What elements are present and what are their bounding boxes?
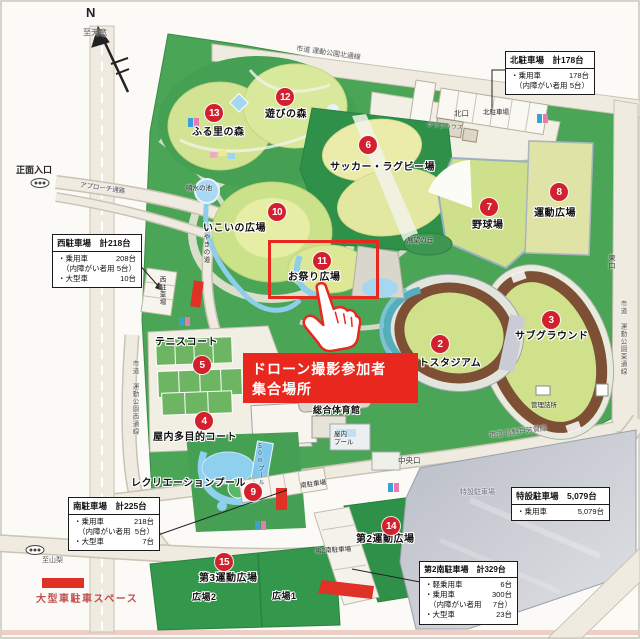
row-value: 10台 (120, 274, 136, 284)
marker-6: 6 (359, 136, 377, 154)
map-label-lookout-hill: 展望の丘 (407, 234, 433, 244)
second-south-parking-title: 第2南駐車場 計329台 (420, 562, 517, 578)
west-parking-title: 西駐車場 計218台 (53, 235, 141, 252)
row-value: 5台） (570, 81, 589, 91)
map-label-indoor-pool: 屋内 プール (334, 431, 354, 447)
map-label-gym: 総合体育館 (313, 403, 361, 416)
row-value: 5,079台 (578, 507, 604, 517)
marker-8: 8 (550, 183, 568, 201)
map-label-special-parking: 特設駐車場 (460, 487, 495, 497)
map-label-second-south-parking: 第2南駐車場 (315, 543, 352, 555)
compass-n-label: N (86, 5, 95, 20)
row-label: （内障がい者用 (62, 264, 115, 274)
row-value: 300台 (492, 590, 512, 600)
row-label: ・乗用車 (511, 71, 541, 81)
drone-meeting-annotation: ドローン撮影参加者 集合場所 (243, 353, 418, 403)
facility-label-furusato-forest: ふる里の森 (192, 123, 245, 138)
hand-cursor-icon (290, 275, 366, 359)
facility-label-tennis-court: テニスコート (155, 333, 218, 348)
row-label: ・乗用車 (74, 517, 104, 527)
row-value: 23台 (496, 610, 512, 620)
south-parking-title: 南駐車場 計225台 (69, 498, 159, 515)
facility-label-indoor-court: 屋内多目的コート (153, 428, 237, 443)
gate-label-east: 東口 (606, 254, 616, 270)
map-label-hiroba1: 広場1 (272, 589, 297, 602)
row-value: 5台） (135, 527, 154, 537)
row-label: ・乗用車 (425, 590, 455, 600)
map-label-fountain-pond: 噴水の池 (186, 182, 212, 192)
facility-label-rest-plaza: いこいの広場 (203, 219, 266, 234)
facility-label-soccer-rugby: サッカー・ラグビー場 (330, 158, 435, 173)
row-label: （内障がい者用 (78, 527, 131, 537)
marker-13: 13 (205, 104, 223, 122)
marker-10: 10 (268, 203, 286, 221)
south-parking-info-box: 南駐車場 計225台 ・乗用車218台 （内障がい者用5台） ・大型車7台 (68, 497, 160, 551)
road-label-west-road: 市道 運動公園西通線 (129, 360, 139, 436)
marker-4: 4 (195, 412, 213, 430)
map-label-west-parking: 西駐車場 (156, 276, 166, 306)
road-label-to-tenryu: 至天竜 (83, 27, 107, 38)
row-value: 7台） (493, 600, 512, 610)
road-label-east-road: 市道 運動公園東通線 (617, 300, 627, 376)
park-map-screenshot: N 至天竜 市道 運動公園北通線 北口 北駐車場 クラブハウス 正面入口 アプロ… (0, 0, 640, 639)
facility-label-sub-ground: サブグラウンド (515, 327, 589, 342)
row-label: ・乗用車 (517, 507, 547, 517)
marker-12: 12 (276, 88, 294, 106)
marker-9: 9 (244, 483, 262, 501)
facility-label-play-forest: 遊びの森 (265, 105, 307, 120)
row-label: ・大型車 (425, 610, 455, 620)
red-bar-south (276, 488, 287, 510)
row-label: （内障がい者用 (429, 600, 482, 610)
marker-7: 7 (480, 198, 498, 216)
north-parking-title: 北駐車場 計178台 (506, 52, 594, 69)
row-label: （内障がい者用 (515, 81, 568, 91)
facility-label-third-plaza: 第3運動広場 (199, 569, 258, 584)
facility-label-recreation-pool: レクリエーションプール (131, 474, 246, 489)
large-vehicle-legend-swatch (42, 578, 84, 588)
marker-14: 14 (382, 517, 400, 535)
row-label: ・大型車 (74, 537, 104, 547)
row-label: ・軽乗用車 (425, 580, 463, 590)
row-value: 5台） (117, 264, 136, 274)
drone-annotation-line1: ドローン撮影参加者 (252, 359, 418, 379)
drone-annotation-line2: 集合場所 (252, 379, 418, 399)
row-value: 6台 (500, 580, 512, 590)
map-label-hiroba2: 広場2 (192, 590, 217, 603)
gate-label-main-entrance: 正面入口 (16, 163, 52, 176)
row-value: 178台 (569, 71, 589, 81)
marker-2: 2 (431, 335, 449, 353)
gate-label-north: 北口 (454, 108, 469, 119)
marker-15: 15 (215, 553, 233, 571)
special-parking-info-box: 特設駐車場 5,079台 ・乗用車5,079台 (511, 487, 610, 521)
gate-label-central: 中央口 (398, 455, 421, 466)
special-parking-title: 特設駐車場 5,079台 (512, 488, 609, 505)
row-value: 7台 (142, 537, 154, 547)
row-value: 218台 (134, 517, 154, 527)
row-value: 208台 (116, 254, 136, 264)
map-label-north-parking: 北駐車場 (483, 106, 509, 116)
north-parking-info-box: 北駐車場 計178台 ・乗用車178台 （内障がい者用5台） (505, 51, 595, 95)
marker-3: 3 (542, 311, 560, 329)
road-label-to-yamanashi: 至山梨 (42, 555, 63, 565)
row-label: ・乗用車 (58, 254, 88, 264)
map-label-kanri-station: 管理詰所 (531, 399, 557, 409)
facility-label-baseball: 野球場 (472, 216, 504, 231)
west-parking-info-box: 西駐車場 計218台 ・乗用車208台 （内障がい者用5台） ・大型車10台 (52, 234, 142, 288)
row-label: ・大型車 (58, 274, 88, 284)
marker-5: 5 (193, 356, 211, 374)
map-label-50m-pool: 50mプール (256, 444, 265, 486)
facility-label-sports-plaza: 運動広場 (534, 204, 576, 219)
large-vehicle-legend-label: 大型車駐車スペース (36, 590, 138, 605)
second-south-parking-info-box: 第2南駐車場 計329台 ・軽乗用車6台 ・乗用車300台 （内障がい者用7台）… (419, 561, 518, 625)
